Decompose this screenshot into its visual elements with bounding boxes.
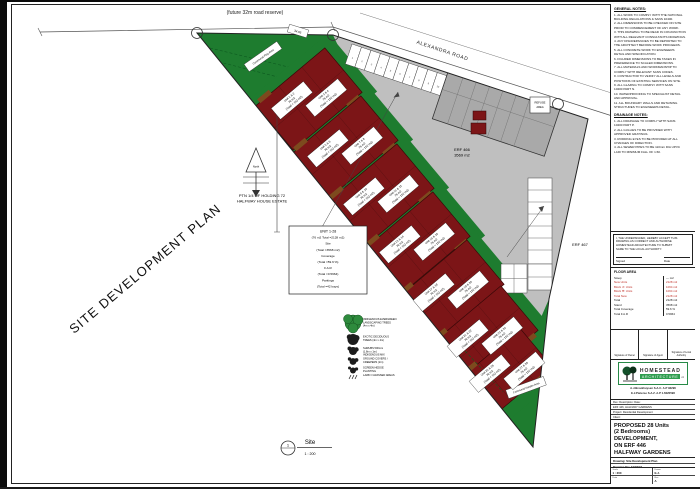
- practitioner-registrations: A.J.Broekhuysen S.A.C. A.P 92296E.J.Piet…: [630, 385, 676, 396]
- meta-cell: Scale1 : 200: [611, 468, 653, 476]
- project-title-lines: PROPOSED 28 Units(2 Bedrooms)DEVELOPMENT…: [614, 423, 692, 457]
- note-line: 3. THIS DRAWING TO BE READ IN CONJUNCTIO…: [614, 30, 692, 34]
- project-title-line: DEVELOPMENT,: [614, 436, 692, 443]
- meta-cell: RevA: [653, 476, 695, 484]
- architect-logo-block: HOMESTEAD ARCHITECTURE cc A.J.Broekhuyse…: [611, 360, 695, 400]
- date-label: Date: [664, 257, 690, 263]
- logo-cc: cc: [681, 376, 684, 379]
- signature-boxes: Signature of OwnerSignature of AgentSign…: [611, 330, 695, 360]
- signature-cell: Signature of Owner: [611, 330, 639, 359]
- logo-name: HOMESTEAD: [640, 368, 684, 374]
- logo-trees-icon: [622, 365, 638, 383]
- drainage-notes-heading: DRAINAGE NOTES:: [614, 113, 692, 117]
- meta-value: E.J.: [655, 471, 694, 475]
- project-info-rows: Rev: Description: Date:ERF 446, HALFWAY …: [611, 400, 695, 420]
- signature-cell: Signature of Local Authority: [668, 330, 695, 359]
- floor-area-heading: FLOOR AREA: [614, 270, 693, 274]
- project-title-line: PROPOSED 28 Units: [614, 423, 692, 430]
- meta-value: 1 : 200: [613, 471, 651, 475]
- drawing-info-rows: Drawing: Site Development PlanDrawing No…: [611, 458, 695, 468]
- notes-panel: GENERAL NOTES: 1. ALL WORK TO COMPLY WIT…: [611, 4, 695, 232]
- practitioner-line: E.J.Pieterse S.A.Z. A.P 1.6020596: [630, 392, 676, 396]
- note-line: 8. CONTRACTOR TO VERIFY ALL LEVELS AND: [614, 74, 692, 78]
- declaration-box: I, THE UNDERSIGNED, HEREBY ACCEPT THISDR…: [613, 234, 693, 265]
- project-title-block: PROPOSED 28 Units(2 Bedrooms)DEVELOPMENT…: [611, 420, 695, 458]
- drawing-meta-grid: Scale1 : 200DrawnE.J.DateRevA: [611, 468, 695, 484]
- meta-label: Date: [613, 477, 651, 479]
- sheet-frame: [11, 4, 695, 484]
- meta-cell: Date: [611, 476, 653, 484]
- floor-area-label: Total F.A.R: [614, 312, 663, 317]
- drawing-sheet: 123456789101112 REFUSE AREA 34.95 (futur…: [0, 0, 700, 489]
- project-info-row: Client:: [611, 415, 695, 419]
- signature-cell: Signature of Agent: [639, 330, 667, 359]
- title-block-column: GENERAL NOTES: 1. ALL WORK TO COMPLY WIT…: [610, 4, 695, 484]
- declaration-section: I, THE UNDERSIGNED, HEREBY ACCEPT THISDR…: [611, 232, 695, 268]
- logo-subtitle: ARCHITECTURE: [640, 374, 681, 379]
- meta-value: A: [655, 479, 694, 483]
- project-title-line: HALFWAY GARDENS: [614, 450, 692, 457]
- logo: HOMESTEAD ARCHITECTURE cc: [618, 362, 688, 385]
- general-notes-heading: GENERAL NOTES:: [614, 7, 692, 11]
- meta-cell: DrawnE.J.: [653, 468, 695, 476]
- declaration-line: SAME TO THE LOCAL AUTHORITY.: [616, 248, 690, 252]
- signed-label: Signed: [616, 257, 642, 263]
- floor-area-value: 0.5964: [663, 312, 693, 317]
- floor-area-rows: Stoep— m2New Units2128 m2Block 'A' Units…: [614, 276, 693, 317]
- declaration-text: I, THE UNDERSIGNED, HEREBY ACCEPT THISDR…: [616, 237, 690, 252]
- note-line: LAID TO MINIMUM FALL OF 1:60.: [614, 150, 692, 154]
- practitioner-line: A.J.Broekhuysen S.A.C. A.P 92296: [630, 387, 676, 391]
- floor-area-table: FLOOR AREA Stoep— m2New Units2128 m2Bloc…: [611, 268, 695, 330]
- general-notes-list: 1. ALL WORK TO COMPLY WITH THE NATIONALB…: [614, 13, 692, 110]
- floor-area-row: Total F.A.R0.5964: [614, 312, 693, 317]
- project-title-line: (2 Bedrooms): [614, 429, 692, 436]
- project-title-line: ON ERF 446: [614, 443, 692, 450]
- drainage-notes-list: 1. ALL DRAINAGE TO COMPLY WITH SANS10400…: [614, 119, 692, 154]
